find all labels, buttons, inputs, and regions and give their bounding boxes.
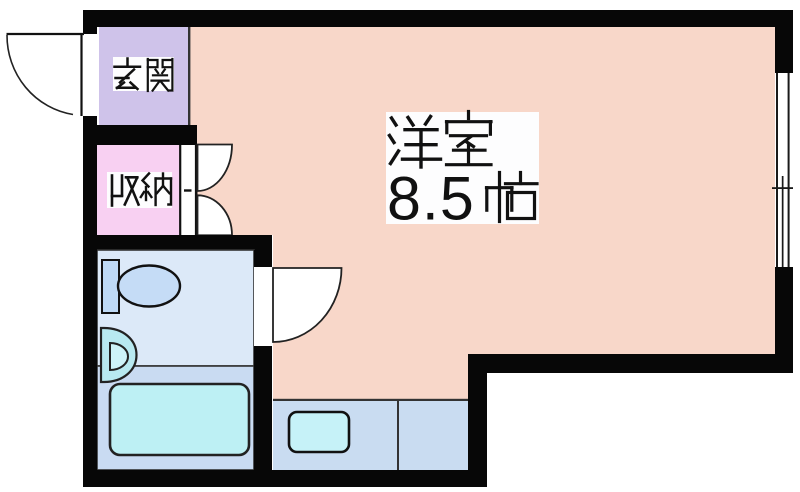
svg-text:8.5: 8.5: [387, 165, 475, 233]
